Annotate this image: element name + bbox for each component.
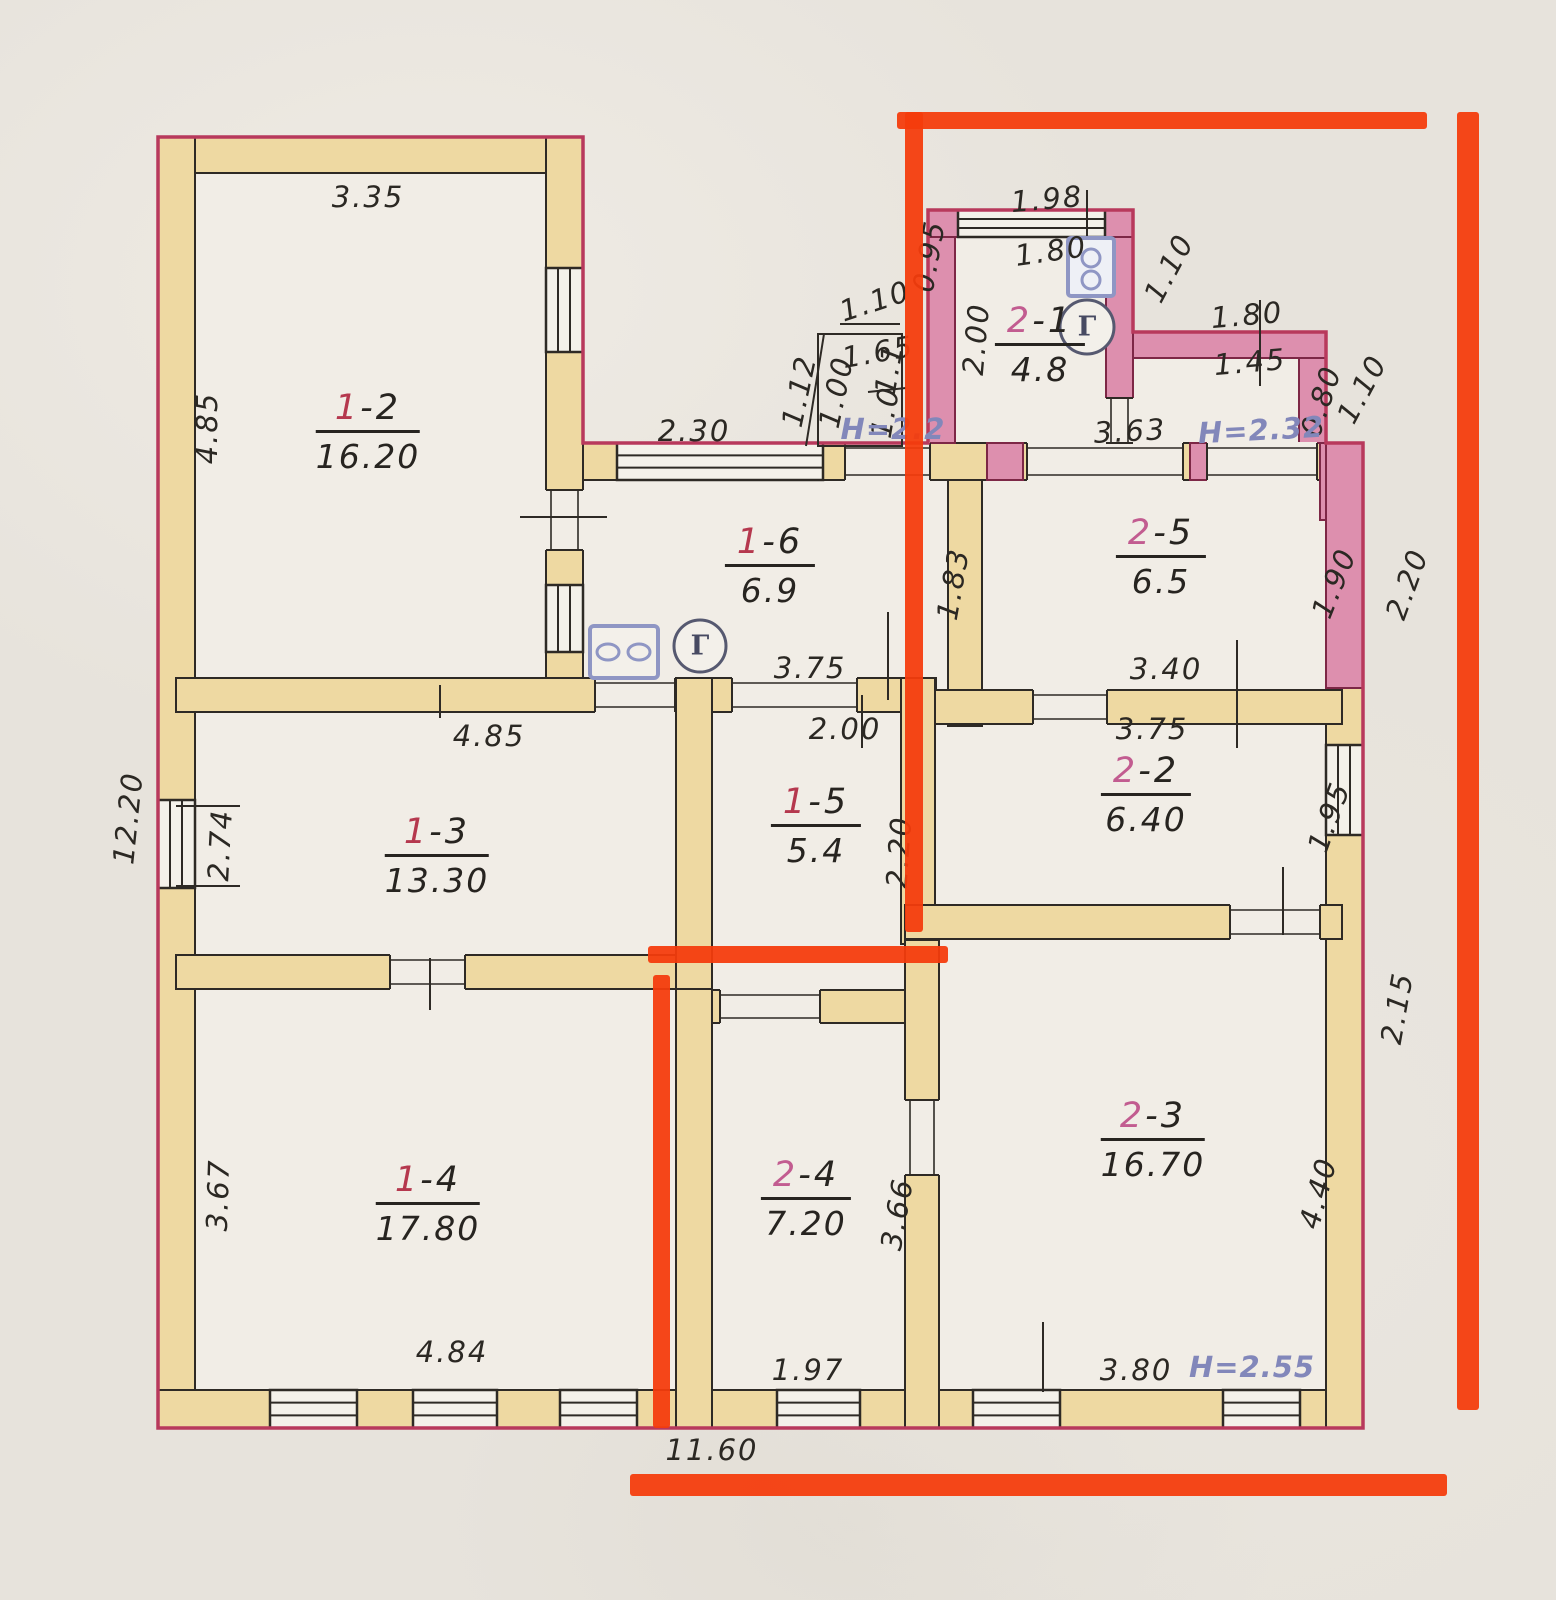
room-number: 2-2 (1101, 751, 1191, 796)
room-number: 1-4 (376, 1160, 480, 1205)
dimension-label: 4.40 (1292, 1154, 1344, 1233)
room-area: 6.5 (1116, 558, 1206, 601)
dimension-label: 2.15 (1374, 969, 1420, 1046)
dimension-label: 1.98 (1009, 179, 1084, 219)
room-suffix: -4 (420, 1160, 461, 1200)
room-area: 13.30 (385, 857, 489, 900)
room-label-1-2: 1-216.20 (316, 388, 420, 476)
room-number: 2-3 (1101, 1096, 1205, 1141)
room-label-1-6: 1-66.9 (725, 522, 815, 610)
room-section-digit: 1 (395, 1160, 420, 1200)
dimension-label: 0.95 (906, 217, 952, 294)
room-suffix: -3 (429, 812, 470, 852)
dimension-label: 1.80 (1013, 229, 1090, 273)
room-suffix: -1 (1032, 301, 1073, 341)
room-area: 16.70 (1101, 1141, 1205, 1184)
dimension-label: 3.75 (774, 651, 847, 685)
room-section-digit: 1 (335, 388, 360, 428)
dimension-label: 1.95 (1301, 777, 1358, 857)
dimension-label: 1.80 (1209, 295, 1284, 335)
height-note-label: H=2.2 (841, 412, 946, 446)
dimension-label: 3.63 (1093, 412, 1167, 450)
room-number: 2-4 (761, 1155, 851, 1200)
room-suffix: -3 (1145, 1096, 1186, 1136)
dimension-label: 4.85 (190, 392, 224, 465)
room-section-digit: 2 (1120, 1096, 1145, 1136)
dimension-label: 3.66 (874, 1175, 920, 1252)
room-label-2-4: 2-47.20 (761, 1155, 851, 1243)
room-number: 1-3 (385, 812, 489, 857)
room-section-digit: 2 (773, 1155, 798, 1195)
dimension-label: 1.97 (772, 1353, 845, 1387)
dimension-label: 2.30 (658, 414, 731, 448)
dimension-label: 3.67 (200, 1158, 237, 1232)
dimension-label: 1.10 (1137, 228, 1201, 308)
height-note-label: H=2.32 (1197, 410, 1325, 451)
gas-meter-letter: Г (1078, 312, 1097, 343)
height-note-label: H=2.55 (1189, 1350, 1315, 1384)
dimension-label: 4.85 (453, 719, 526, 753)
room-label-2-1: 2-14.8 (995, 301, 1085, 389)
room-section-digit: 2 (1113, 751, 1138, 791)
room-label-2-3: 2-316.70 (1101, 1096, 1205, 1184)
dimension-label: 3.80 (1100, 1353, 1173, 1387)
dimension-label: 12.20 (106, 770, 150, 866)
dimension-label: 1.83 (930, 545, 976, 622)
room-section-digit: 1 (404, 812, 429, 852)
labels-layer: 3.354.8512.202.743.674.8411.602.301.121.… (0, 0, 1556, 1600)
room-suffix: -2 (360, 388, 401, 428)
room-area: 16.20 (316, 433, 420, 476)
room-section-digit: 2 (1128, 513, 1153, 553)
room-number: 1-6 (725, 522, 815, 567)
dimension-label: 3.40 (1130, 652, 1203, 686)
dimension-label: 1.10 (835, 274, 915, 329)
room-suffix: -5 (1153, 513, 1194, 553)
room-suffix: -2 (1138, 751, 1179, 791)
dimension-label: 2.20 (1379, 544, 1436, 624)
room-label-2-2: 2-26.40 (1101, 751, 1191, 839)
room-area: 17.80 (376, 1205, 480, 1248)
room-area: 4.8 (995, 346, 1085, 389)
room-section-digit: 1 (783, 782, 808, 822)
room-number: 2-1 (995, 301, 1085, 346)
room-number: 2-5 (1116, 513, 1206, 558)
room-section-digit: 2 (1007, 301, 1032, 341)
room-number: 1-2 (316, 388, 420, 433)
room-suffix: -4 (798, 1155, 839, 1195)
room-label-1-4: 1-417.80 (376, 1160, 480, 1248)
dimension-label: 4.84 (416, 1335, 489, 1369)
room-area: 6.40 (1101, 796, 1191, 839)
dimension-label: 2.74 (201, 808, 239, 882)
gas-meter-letter: Г (691, 631, 710, 662)
room-label-2-5: 2-56.5 (1116, 513, 1206, 601)
room-suffix: -6 (762, 522, 803, 562)
dimension-label: 3.75 (1116, 712, 1189, 746)
dimension-label: 2.20 (880, 815, 919, 890)
dimension-label: 2.00 (956, 301, 996, 376)
dimension-label: 3.35 (332, 180, 405, 214)
room-label-1-3: 1-313.30 (385, 812, 489, 900)
room-number: 1-5 (771, 782, 861, 827)
room-label-1-5: 1-55.4 (771, 782, 861, 870)
room-area: 6.9 (725, 567, 815, 610)
floorplan-scan: 3.354.8512.202.743.674.8411.602.301.121.… (0, 0, 1556, 1600)
room-area: 5.4 (771, 827, 861, 870)
dimension-label: 1.45 (1212, 342, 1287, 382)
dimension-label: 2.00 (809, 712, 882, 746)
room-suffix: -5 (808, 782, 849, 822)
room-section-digit: 1 (737, 522, 762, 562)
dimension-label: 1.90 (1305, 543, 1364, 623)
dimension-label: 11.60 (665, 1433, 758, 1467)
room-area: 7.20 (761, 1200, 851, 1243)
